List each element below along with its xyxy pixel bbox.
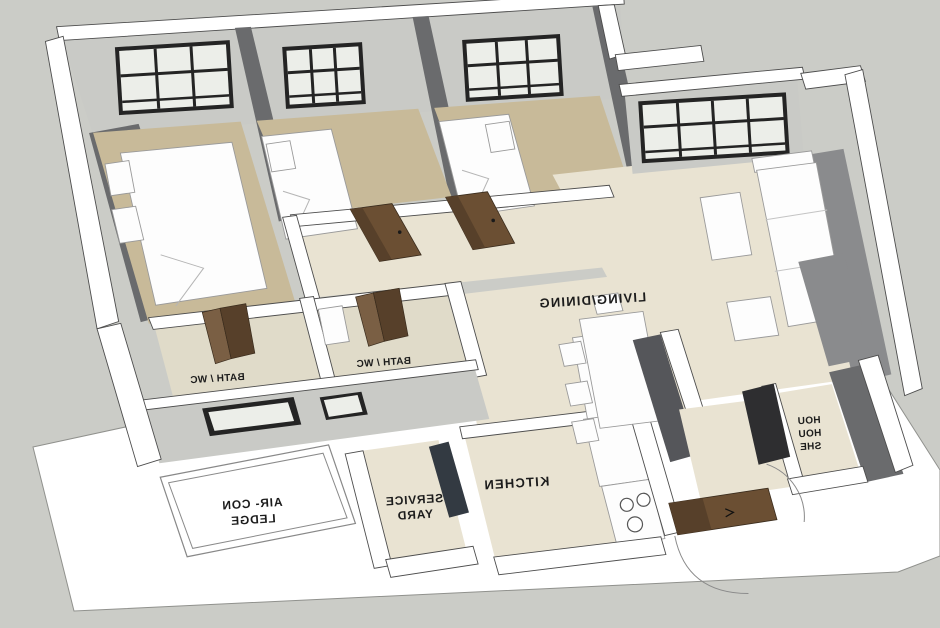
svg-text:LEDGE: LEDGE — [230, 511, 276, 528]
ottoman — [726, 296, 778, 341]
svg-text:SHE: SHE — [800, 441, 822, 453]
stove-burner — [620, 498, 634, 512]
stove-burner — [627, 516, 643, 532]
bed-pillow — [485, 121, 515, 153]
floor-plan-3d-rendering: LIVING/DINING KITCHEN BATH / WC BATH / W… — [0, 0, 940, 628]
svg-text:HOU: HOU — [798, 428, 822, 440]
household-shelter-label: HOU HOU SHE — [797, 415, 822, 453]
stove-burner — [637, 493, 651, 507]
bedroom1-window — [115, 40, 234, 115]
bed-pillow — [266, 140, 296, 172]
bedroom3-window — [462, 34, 564, 102]
svg-text:HOU: HOU — [797, 415, 821, 427]
living-window — [638, 92, 790, 163]
svg-text:YARD: YARD — [397, 507, 434, 523]
floor-plan-canvas: LIVING/DINING KITCHEN BATH / WC BATH / W… — [0, 0, 940, 628]
bedroom2-window — [282, 42, 366, 109]
